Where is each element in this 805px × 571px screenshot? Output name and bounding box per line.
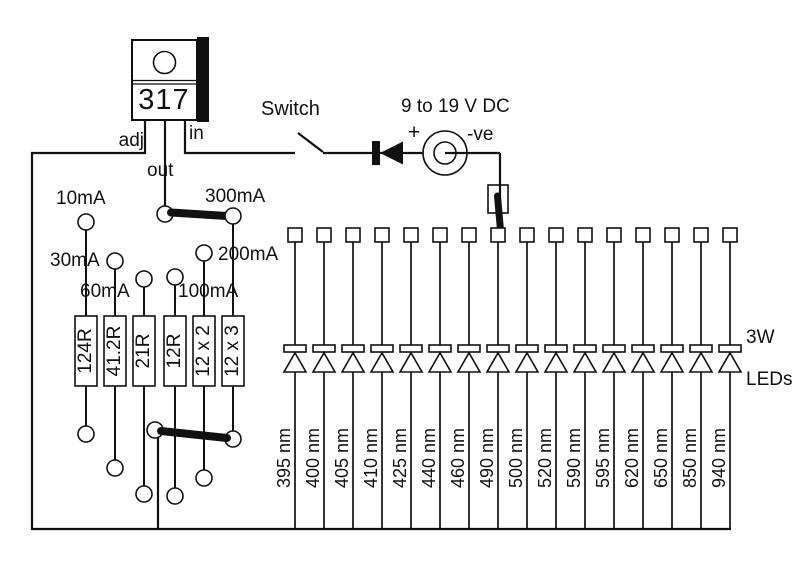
wavelength-label-440nm: 440 nm [418, 426, 440, 490]
wavelength-label-620nm: 620 nm [621, 426, 643, 490]
led-select-link [488, 185, 508, 230]
resistor-value-12x2: 12 x 2 [193, 316, 215, 386]
wavelength-label-520nm: 520 nm [534, 426, 556, 490]
wavelength-label-410nm: 410 nm [360, 426, 382, 490]
resistor-value-12R: 12R [164, 316, 186, 386]
wavelength-label-400nm: 400 nm [302, 426, 324, 490]
heatsink-tab [197, 37, 209, 122]
current-label-300mA: 300mA [205, 186, 265, 208]
jumper-bar-bottom [161, 431, 227, 438]
supply-plus-label: + [408, 122, 420, 144]
supply-voltage-label: 9 to 19 V DC [401, 96, 510, 118]
led-power-label: 3W [746, 327, 775, 349]
resistor-12R [164, 269, 186, 504]
switch-lever [298, 133, 323, 152]
protection-diode [372, 141, 403, 165]
regulator-part-label: 317 [132, 85, 196, 115]
current-label-30mA: 30mA [50, 250, 100, 272]
wavelength-label-500nm: 500 nm [505, 426, 527, 490]
resistor-value-41.2R: 41.2R [104, 316, 126, 386]
wavelength-label-650nm: 650 nm [650, 426, 672, 490]
wavelength-label-395nm: 395 nm [273, 426, 295, 490]
wavelength-label-460nm: 460 nm [447, 426, 469, 490]
pin-label-out: out [147, 160, 173, 182]
wavelength-label-405nm: 405 nm [331, 426, 353, 490]
circuit-diagram: 317 adj out in Switch 9 to 19 V DC + -ve… [0, 0, 805, 571]
wavelength-label-425nm: 425 nm [389, 426, 411, 490]
current-label-200mA: 200mA [218, 244, 278, 266]
resistor-21R [133, 271, 155, 502]
led-type-label: LEDs [746, 369, 792, 391]
resistor-value-124R: 124R [75, 316, 97, 386]
jumper-bar-led [498, 196, 501, 230]
supply-minus-label: -ve [467, 124, 493, 146]
resistor-value-12x3: 12 x 3 [222, 316, 244, 386]
wavelength-label-595nm: 595 nm [592, 426, 614, 490]
current-label-10mA: 10mA [56, 188, 106, 210]
pin-label-in: in [189, 123, 204, 145]
wavelength-label-850nm: 850 nm [679, 426, 701, 490]
jumper-bar-top [171, 213, 227, 217]
wavelength-label-490nm: 490 nm [476, 426, 498, 490]
pin-label-adj: adj [104, 130, 144, 152]
switch-label: Switch [261, 98, 320, 120]
wavelength-label-940nm: 940 nm [708, 426, 730, 490]
resistor-value-21R: 21R [133, 316, 155, 386]
current-label-60mA: 60mA [80, 281, 130, 303]
current-label-100mA: 100mA [178, 281, 238, 303]
wavelength-label-590nm: 590 nm [563, 426, 585, 490]
